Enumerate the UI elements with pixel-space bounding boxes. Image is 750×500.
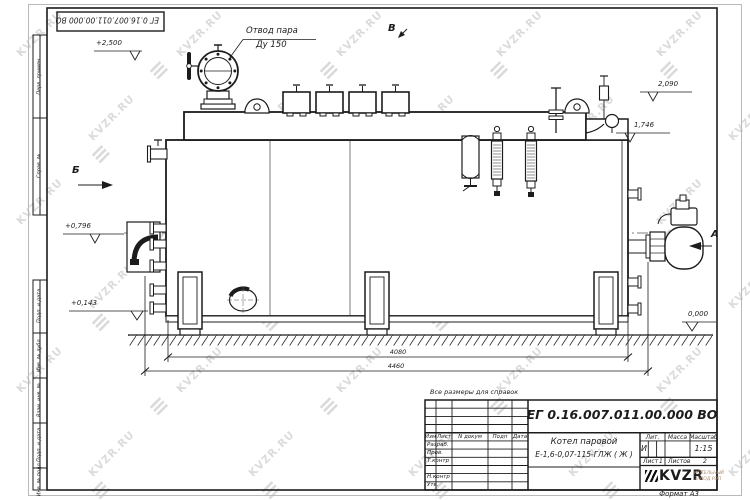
tb-col-data: Дата — [513, 435, 527, 441]
ground-hatch — [128, 336, 713, 346]
tb-scale-header: Масштаб — [689, 435, 718, 441]
tb-mass-header: Масса — [668, 435, 687, 441]
level-0143: +0,143 — [71, 300, 97, 307]
tb-row-nkontr: Н.контр — [427, 475, 450, 481]
frame-field-podp-data-2: Подп. и дата — [38, 428, 43, 462]
tb-col-list: Лист — [437, 435, 451, 441]
reference-note: Все размеры для справок — [430, 389, 518, 396]
tb-sheet-value: 1 — [659, 459, 663, 465]
tb-row-tkontr: Т.контр — [427, 459, 449, 465]
drawing-sheet: KVZR.RU≡KVZR.RU≡KVZR.RU≡KVZR.RU≡KVZR.RUK… — [0, 0, 750, 500]
front-attachments — [127, 140, 167, 314]
steam-outlet-label-2: Ду 150 — [256, 41, 287, 50]
frame-field-sprav-no: Справ. № — [38, 154, 43, 178]
level-2500: +2,500 — [96, 40, 122, 47]
titleblock-name-line2: Е-1,6-0,07-115-ГЛЖ ( Ж ) — [535, 451, 633, 459]
spring-icon — [645, 470, 658, 482]
frame-field-vzam-inv: Взам. инв. № — [38, 383, 43, 417]
tb-col-podp: Подп — [493, 435, 508, 441]
tb-lit-header: Лит. — [646, 435, 660, 441]
view-label-a-right: А — [711, 230, 719, 240]
view-arrow-b-left — [78, 181, 113, 189]
tb-lit-value: И — [641, 445, 647, 453]
boiler-technical-drawing — [0, 0, 750, 500]
format-label: Формат А3 — [659, 491, 699, 498]
frame-field-inv-podl: Инв. № подл. — [38, 462, 43, 497]
kvzr-logo-sub2: ЗАВОД РЭП — [694, 477, 721, 482]
tb-row-razrab: Разраб. — [427, 443, 449, 449]
titleblock-designation: ЕГ 0.16.007.011.00.000 ВО — [527, 409, 718, 422]
level-0000: 0,000 — [688, 311, 708, 318]
frame-field-perv-primen: Перв. примен. — [38, 57, 43, 95]
dim-4080: 4080 — [390, 349, 407, 356]
skid-rail — [166, 316, 628, 322]
tb-row-prov: Пров. — [427, 451, 443, 457]
tb-col-izm: Изм — [425, 435, 436, 441]
dim-4460: 4460 — [388, 363, 405, 370]
tb-sheets-value: 2 — [703, 459, 707, 465]
boiler-body-group — [63, 29, 716, 376]
tb-row-utv: Утв. — [427, 483, 439, 489]
top-reversed-designation: ЕГ 0.16.007.011.00.000 ВО — [62, 16, 159, 24]
view-label-b-top: В — [388, 24, 396, 34]
level-0796: +0,796 — [65, 223, 91, 230]
titleblock-name-line1: Котел паровой — [551, 438, 618, 447]
view-arrow-b-top — [398, 29, 407, 38]
tb-sheet-label: Лист — [643, 459, 658, 465]
level-2090: 2,090 — [658, 81, 678, 88]
frame-field-podp-data-1: Подп. и дата — [38, 289, 43, 323]
kvzr-logo-sub1: КОТЕЛЬНЫЙ — [694, 471, 724, 476]
steam-outlet-valve — [187, 45, 238, 109]
steam-outlet-label-1: Отвод пара — [246, 27, 298, 36]
tb-scale-value: 1:15 — [695, 445, 713, 453]
tb-col-ndokum: N докум — [458, 435, 482, 441]
view-label-b-left: Б — [72, 166, 80, 176]
tb-sheets-label: Листов — [668, 459, 690, 465]
level-1746: 1,746 — [634, 122, 654, 129]
steam-drum — [184, 112, 586, 140]
feed-pump-unit — [628, 188, 703, 315]
frame-field-inv-dubl: Инв. № дубл. — [38, 338, 43, 372]
